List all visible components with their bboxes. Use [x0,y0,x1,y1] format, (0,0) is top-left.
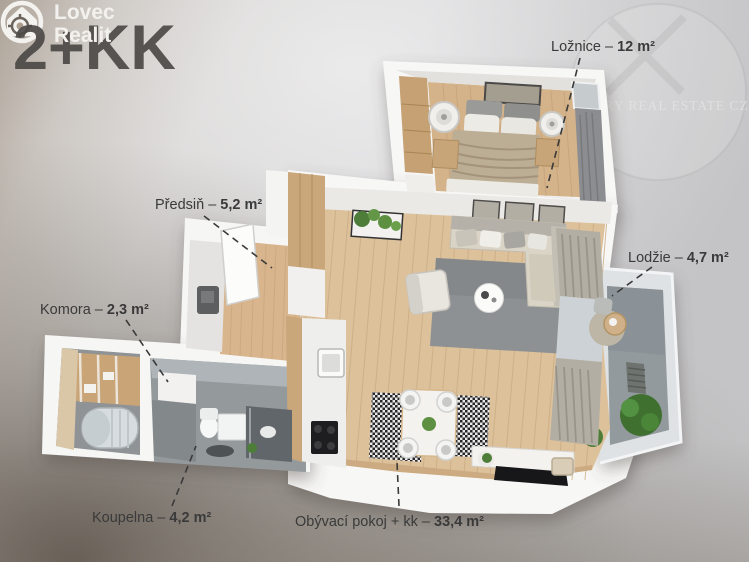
svg-text:Ložnice – 12 m²: Ložnice – 12 m² [551,39,655,55]
svg-text:Obývací pokoj + kk – 33,4 m²: Obývací pokoj + kk – 33,4 m² [295,514,484,530]
svg-text:Předsiň – 5,2 m²: Předsiň – 5,2 m² [155,197,262,213]
svg-text:Lovec: Lovec [54,1,115,24]
svg-text:Koupelna – 4,2 m²: Koupelna – 4,2 m² [92,510,211,526]
svg-text:Komora – 2,3 m²: Komora – 2,3 m² [40,302,149,318]
svg-text:Lodžie – 4,7 m²: Lodžie – 4,7 m² [628,250,729,266]
svg-text:Realit: Realit [54,24,111,47]
